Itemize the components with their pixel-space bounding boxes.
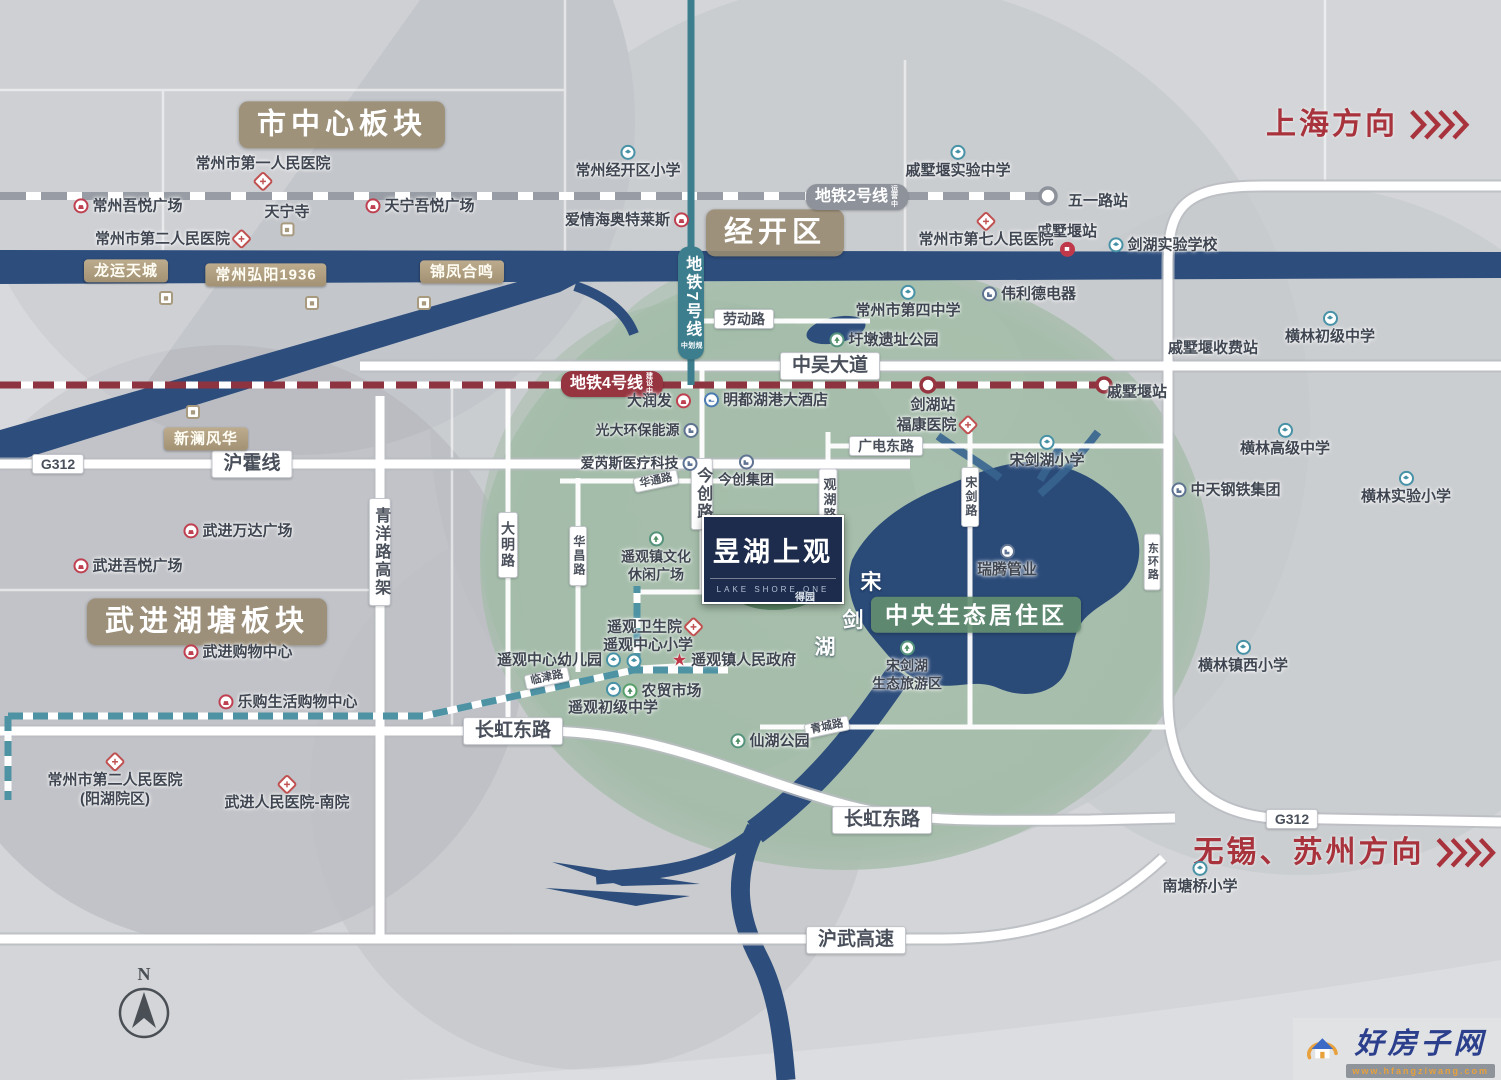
school-icon — [606, 653, 621, 668]
watermark-url: www.hfangziwang.com — [1346, 1064, 1495, 1078]
school-icon — [1322, 311, 1337, 326]
government-star-icon: ★ — [672, 652, 687, 669]
road-label-qingyang-viaduct: 青洋路高架 — [369, 498, 391, 606]
poi-label: 横林高级中学 — [1240, 440, 1330, 457]
poi-yaoguan-gov: ★ 遥观镇人民政府 — [672, 651, 796, 668]
poi-label: 武进万达广场 — [202, 522, 292, 539]
business-icon — [999, 544, 1014, 559]
lake-name-char: 剑 — [843, 609, 864, 633]
hospital-icon — [252, 171, 273, 192]
poi-qishuyan-exp-middle: 戚墅堰实验中学 — [905, 145, 1010, 179]
metro-line7-badge: 地铁7号线 规划中 — [678, 247, 704, 360]
poi-label: 宋剑湖 — [886, 657, 928, 673]
metro-line2-label: 地铁2号线 — [815, 188, 888, 206]
poi-weilide: 伟利德电器 — [982, 285, 1076, 302]
shopping-icon — [218, 695, 233, 710]
poi-label: 剑湖实验学校 — [1127, 236, 1217, 253]
poi-legou: 乐购生活购物中心 — [218, 693, 357, 710]
poi-aiqinghai: 爱情海奥特莱斯 — [565, 211, 689, 228]
road-label-g312-left: G312 — [32, 454, 84, 474]
station-qishuyan-toll: 戚墅堰收费站 — [1168, 339, 1258, 356]
hospital-icon — [231, 228, 252, 249]
road-label-songjian: 宋剑路 — [961, 467, 979, 527]
poi-henglin-west-primary: 横林镇西小学 — [1198, 640, 1288, 674]
poi-wuyue-tianning: 天宁吾悦广场 — [365, 197, 474, 214]
road-label-huhuo: 沪霍线 — [211, 450, 292, 478]
poi-label: 武进购物中心 — [202, 643, 292, 660]
poi-wujin-shopping: 武进购物中心 — [183, 643, 292, 660]
poi-label: 伟利德电器 — [1001, 285, 1076, 302]
poi-airuisi: 爱芮斯医疗科技 — [581, 455, 698, 471]
poi-wanda: 武进万达广场 — [183, 522, 292, 539]
direction-shanghai-label: 上海方向 — [1266, 108, 1398, 143]
region-badge-wujin-hutang: 武进湖塘板块 — [87, 598, 327, 645]
shopping-icon — [183, 645, 198, 660]
school-icon — [605, 682, 620, 697]
poi-henglin-exp-primary: 横林实验小学 — [1361, 471, 1451, 505]
shopping-icon — [365, 199, 380, 214]
poi-label: 今创集团 — [718, 471, 774, 487]
poi-label: 天宁吾悦广场 — [384, 197, 474, 214]
poi-label: 爱芮斯医疗科技 — [581, 455, 679, 471]
poi-label: 生态旅游区 — [872, 676, 942, 692]
poi-label: 遥观镇人民政府 — [691, 651, 796, 668]
business-icon — [982, 287, 997, 302]
hotel-icon — [704, 393, 719, 408]
lake-name-char: 湖 — [815, 636, 836, 660]
road-label-changhong-east-2: 长虹东路 — [832, 806, 932, 834]
poi-label: 休闲广场 — [628, 567, 684, 583]
school-icon — [1192, 861, 1207, 876]
region-badge-city-center: 市中心板块 — [239, 101, 445, 148]
poi-hospital-no2-yanghu: 常州市第二人民医院 (阳湖院区) — [47, 754, 182, 808]
region-badge-jingkai: 经开区 — [706, 209, 844, 256]
metro-line2-status: 运营中 — [891, 186, 899, 208]
poi-nantangqiao-primary: 南塘桥小学 — [1162, 861, 1237, 895]
school-icon — [1108, 238, 1123, 253]
park-icon — [730, 734, 745, 749]
business-icon — [683, 456, 698, 471]
poi-label: 横林镇西小学 — [1198, 657, 1288, 674]
hospital-icon — [957, 414, 978, 435]
station-qishuyan-metro: 戚墅堰站 — [1107, 383, 1167, 400]
road-label-huachang: 华昌路 — [569, 526, 587, 586]
business-icon — [684, 423, 699, 438]
shopping-icon — [674, 213, 689, 228]
hospital-icon — [276, 774, 297, 795]
poi-label: 常州市第二人民医院 — [95, 230, 230, 247]
poi-label: 常州经开区小学 — [575, 162, 680, 179]
compass-icon — [117, 986, 171, 1040]
building-icon — [159, 291, 173, 305]
poi-label: 横林初级中学 — [1285, 328, 1375, 345]
poi-label: 遥观中心幼儿园 — [497, 651, 602, 668]
poi-wuyue-changzhou: 常州吾悦广场 — [73, 197, 182, 214]
poi-label: 遥观初级中学 — [568, 699, 658, 716]
poi-fukang: 福康医院 — [896, 416, 975, 433]
poi-songjianhu-scenic: 宋剑湖 生态旅游区 — [872, 640, 942, 691]
school-icon — [1039, 435, 1054, 450]
poi-label: 南塘桥小学 — [1162, 878, 1237, 895]
metro-line4-label: 地铁4号线 — [570, 375, 643, 393]
poi-label: 常州吾悦广场 — [92, 197, 182, 214]
shopping-icon — [676, 394, 691, 409]
poi-label: 明都湖港大酒店 — [723, 391, 828, 408]
road-label-donghuan: 东环路 — [1144, 534, 1161, 591]
road-label-g312-right: G312 — [1266, 809, 1318, 829]
poi-label: 瑞腾管业 — [977, 561, 1037, 578]
poi-hospital-no1: 常州市第一人民医院 — [195, 155, 330, 189]
poi-hospital-no7: 常州市第七人民医院 — [918, 214, 1053, 248]
compass: N — [117, 964, 171, 1040]
shopping-icon — [73, 199, 88, 214]
road-label-guangdian-east: 广电东路 — [849, 436, 923, 456]
park-icon — [900, 640, 915, 655]
poi-ruiteng: 瑞腾管业 — [977, 544, 1037, 578]
poi-zhongtian: 中天钢铁集团 — [1171, 481, 1280, 498]
metro-line7-label: 地铁7号线 — [682, 256, 700, 339]
poi-label: 常州市第四中学 — [855, 302, 960, 319]
poi-yudun-park: 圩墩遗址公园 — [829, 331, 938, 348]
island-label: 得园 — [795, 592, 815, 604]
direction-shanghai: 上海方向 — [1266, 108, 1470, 143]
poi-label: 爱情海奥特莱斯 — [565, 211, 670, 228]
rail-station-icon — [1059, 242, 1074, 257]
poi-label: 光大环保能源 — [596, 422, 680, 438]
poi-jingkai-primary: 常州经开区小学 — [575, 145, 680, 179]
poi-label: 圩墩遗址公园 — [848, 331, 938, 348]
station-jianhu: 剑湖站 — [910, 396, 955, 413]
building-icon — [186, 405, 200, 419]
direction-wuxi-suzhou: 无锡、苏州方向 — [1194, 836, 1497, 871]
station-wuyilu: 五一路站 — [1068, 192, 1128, 209]
poi-label: 遥观卫生院 — [607, 618, 682, 635]
lake-name-char: 宋 — [861, 571, 882, 595]
school-icon — [1398, 471, 1413, 486]
school-icon — [627, 654, 642, 669]
poi-label: (阳湖院区) — [80, 791, 150, 808]
poi-wuyue-wujin: 武进吾悦广场 — [73, 557, 182, 574]
poi-tianningsi: 天宁寺 — [264, 203, 309, 236]
poi-label: 戚墅堰实验中学 — [905, 162, 1010, 179]
road-label-daming: 大明路 — [498, 512, 518, 578]
park-icon — [829, 333, 844, 348]
shopping-icon — [183, 524, 198, 539]
poi-yaoguan-junior: 遥观初级中学 — [568, 682, 658, 716]
location-map: 市中心板块 经开区 武进湖塘板块 中央生态居住区 上海方向 无锡、苏州方向 地铁… — [0, 0, 1501, 1080]
hospital-icon — [683, 616, 704, 637]
poi-longyun-bubble: 龙运天城 — [84, 259, 168, 282]
project-name: 昱湖上观 — [710, 530, 836, 569]
school-icon — [1235, 640, 1250, 655]
road-label-zhongwu: 中吴大道 — [780, 352, 880, 380]
business-icon — [739, 454, 754, 469]
school-icon — [950, 145, 965, 160]
watermark: 好房子网 www.hfangziwang.com — [1293, 1018, 1501, 1080]
poi-label: 仙湖公园 — [749, 732, 809, 749]
poi-label: 武进吾悦广场 — [92, 557, 182, 574]
poi-jianhu-exp-school: 剑湖实验学校 — [1108, 236, 1217, 253]
shopping-icon — [73, 559, 88, 574]
school-icon — [620, 145, 635, 160]
building-icon — [305, 296, 319, 310]
temple-icon — [280, 223, 294, 237]
poi-songjianhu-primary: 宋剑湖小学 — [1009, 435, 1084, 469]
poi-label: 大润发 — [627, 392, 672, 409]
poi-label: 乐购生活购物中心 — [237, 693, 357, 710]
poi-yaoguan-kindergarten: 遥观中心幼儿园 — [497, 651, 621, 668]
poi-jinfeng-bubble: 锦凤合鸣 — [420, 260, 504, 283]
poi-label: 遥观镇文化 — [621, 548, 691, 564]
metro-line7-status: 规划中 — [680, 341, 702, 350]
poi-label: 福康医院 — [896, 416, 956, 433]
project-subtitle: LAKE SHORE ONE — [710, 578, 836, 594]
hospital-icon — [975, 211, 996, 232]
poi-no4-middle: 常州市第四中学 — [855, 285, 960, 319]
region-badge-central-eco: 中央生态居住区 — [871, 597, 1081, 633]
road-label-laodong: 劳动路 — [714, 309, 774, 329]
poi-xinlan-bubble: 新澜风华 — [164, 427, 248, 450]
park-icon — [649, 531, 664, 546]
building-icon — [417, 296, 431, 310]
poi-darunfa: 大润发 — [627, 392, 691, 409]
poi-label: 常州市第二人民医院 — [47, 771, 182, 788]
road-label-changhong-east-1: 长虹东路 — [463, 717, 563, 745]
watermark-site-name: 好房子网 — [1355, 1020, 1487, 1062]
poi-wujin-hospital-south: 武进人民医院-南院 — [225, 777, 350, 811]
poi-guangda: 光大环保能源 — [596, 422, 699, 438]
chevrons-right-icon — [1408, 110, 1470, 140]
poi-label: 常州市第七人民医院 — [918, 231, 1053, 248]
poi-yaoguan-culture: 遥观镇文化 休闲广场 — [621, 531, 691, 582]
poi-hospital-no2: 常州市第二人民医院 — [95, 230, 249, 247]
hospital-icon — [104, 751, 125, 772]
site-logo-icon — [1303, 1028, 1340, 1070]
poi-label: 天宁寺 — [264, 203, 309, 220]
compass-north-label: N — [138, 964, 151, 985]
poi-jinchuang-group: 今创集团 — [718, 454, 774, 487]
school-icon — [1277, 423, 1292, 438]
business-icon — [1171, 483, 1186, 498]
project-badge: 昱湖上观 LAKE SHORE ONE — [702, 515, 844, 604]
school-icon — [900, 285, 915, 300]
poi-xianhu-park: 仙湖公园 — [730, 732, 809, 749]
poi-label: 武进人民医院-南院 — [225, 794, 350, 811]
poi-hongyang-bubble: 常州弘阳1936 — [205, 263, 326, 286]
poi-label: 中天钢铁集团 — [1190, 481, 1280, 498]
poi-yaoguan-health: 遥观卫生院 — [607, 618, 701, 635]
poi-henglin-senior: 横林高级中学 — [1240, 423, 1330, 457]
poi-label: 宋剑湖小学 — [1009, 452, 1084, 469]
chevrons-right-icon — [1435, 838, 1497, 868]
poi-henglin-junior: 横林初级中学 — [1285, 311, 1375, 345]
metro-line2-badge: 地铁2号线 运营中 — [806, 184, 908, 210]
poi-mingdu-hotel: 明都湖港大酒店 — [704, 391, 828, 408]
poi-label: 横林实验小学 — [1361, 488, 1451, 505]
poi-label: 常州市第一人民医院 — [195, 155, 330, 172]
road-label-huwu-expwy: 沪武高速 — [806, 926, 906, 954]
